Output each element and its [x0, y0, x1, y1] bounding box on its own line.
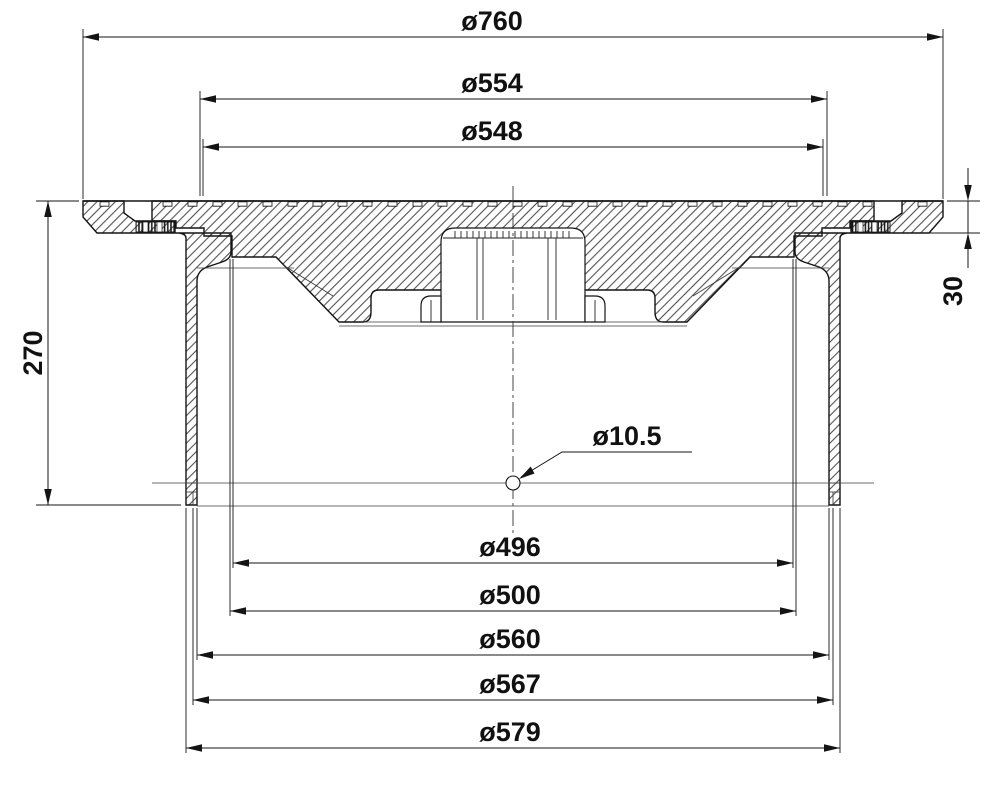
dimension-270: 270 [18, 201, 181, 505]
dim-label-579: ø579 [479, 717, 541, 747]
gasket-right [852, 222, 890, 232]
dim-label-500: ø500 [479, 580, 541, 610]
dim-label-554: ø554 [461, 68, 523, 98]
dimension-30: 30 [902, 168, 980, 306]
frame-right-section [795, 201, 943, 505]
dimension-548: ø548 [203, 116, 823, 196]
technical-drawing: ø760 ø554 ø548 270 30 [0, 0, 997, 791]
dimension-hole-10-5: ø10.5 [506, 421, 692, 490]
gasket-left [136, 222, 174, 232]
dim-label-760: ø760 [461, 6, 523, 36]
hole-marker [506, 476, 520, 490]
drawing-sheet: ø760 ø554 ø548 270 30 [0, 0, 997, 791]
frame-left-section [83, 201, 231, 505]
dim-label-567: ø567 [479, 669, 541, 699]
dim-label-548: ø548 [461, 116, 523, 146]
dimension-760: ø760 [83, 6, 943, 199]
dim-label-270: 270 [18, 330, 48, 375]
dim-label-496: ø496 [479, 532, 541, 562]
dim-label-30: 30 [938, 276, 968, 306]
dim-label-560: ø560 [479, 624, 541, 654]
dim-label-10-5: ø10.5 [592, 421, 661, 451]
